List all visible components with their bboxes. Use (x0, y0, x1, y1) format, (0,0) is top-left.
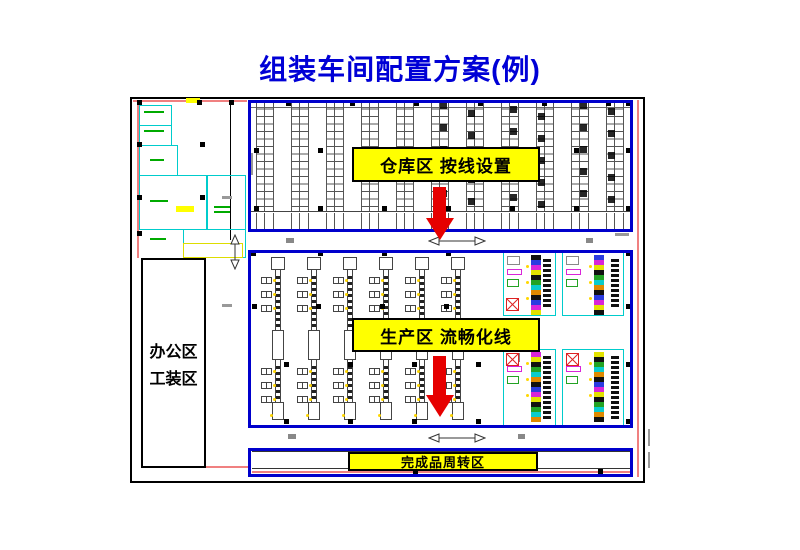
finished-goods-zone-label: 完成品周转区 (348, 452, 538, 471)
cad-room-outline (139, 145, 178, 176)
office-area-label-line2: 工装区 (149, 365, 197, 389)
cad-detail-line (206, 466, 248, 468)
warehouse-zone-label: 仓库区 按线设置 (352, 147, 540, 182)
column-marker (137, 231, 142, 236)
cad-detail-line (637, 100, 639, 477)
cad-room-outline (139, 125, 172, 146)
column-marker (200, 142, 205, 147)
office-area-box: 办公区 工装区 (141, 258, 206, 468)
aisle-double-arrow-icon (428, 432, 486, 444)
cad-detail-line (288, 434, 296, 439)
flow-down-arrow-production-head (426, 395, 454, 417)
column-marker (229, 100, 234, 105)
slide: 组装车间配置方案(例) 办公区 工装区 仓库区 按线设置 生产区 流畅化线 完成… (0, 0, 800, 550)
column-marker (137, 142, 142, 147)
production-zone-label: 生产区 流畅化线 (352, 318, 540, 352)
cad-detail-line (150, 238, 166, 240)
flow-down-arrow-warehouse-head (426, 218, 454, 240)
column-marker (137, 100, 142, 105)
flow-down-arrow-warehouse (433, 187, 446, 219)
cad-room-outline (139, 105, 172, 126)
flow-down-arrow-production (433, 356, 446, 396)
column-marker (197, 100, 202, 105)
corridor-double-arrow-icon (229, 234, 241, 270)
column-marker (137, 195, 142, 200)
cad-room-outline (139, 175, 207, 230)
cad-detail-line (222, 304, 232, 307)
cad-room-outline (207, 175, 246, 230)
cad-detail-line (648, 452, 650, 468)
cad-detail-line (286, 238, 294, 243)
cad-detail-line (586, 238, 593, 243)
cad-detail-line (648, 429, 650, 446)
office-area-label-line1: 办公区 (149, 338, 197, 362)
column-marker (200, 195, 205, 200)
cad-detail-line (615, 233, 629, 236)
slide-title: 组装车间配置方案(例) (0, 48, 800, 88)
cad-detail-line (518, 434, 525, 439)
